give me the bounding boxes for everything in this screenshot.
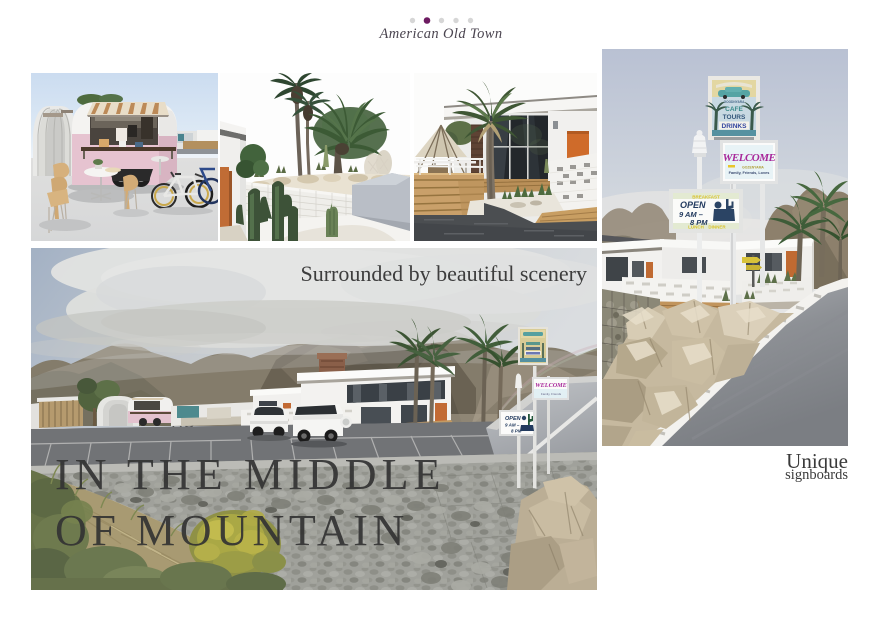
svg-text:GOZENYAMA: GOZENYAMA xyxy=(742,166,764,170)
svg-text:BREAKFAST: BREAKFAST xyxy=(692,195,720,200)
svg-text:9 AM –: 9 AM – xyxy=(505,423,520,428)
svg-text:Family, Friends, Loves: Family, Friends, Loves xyxy=(729,171,770,175)
svg-text:Family, Friends: Family, Friends xyxy=(541,392,562,396)
svg-text:OPEN: OPEN xyxy=(680,200,706,210)
svg-text:TOURS: TOURS xyxy=(723,114,746,121)
svg-text:DRINKS: DRINKS xyxy=(722,123,748,130)
svg-text:WELCOME: WELCOME xyxy=(535,382,567,389)
svg-text:DINNER: DINNER xyxy=(708,225,726,230)
svg-text:WELCOME: WELCOME xyxy=(723,152,776,164)
svg-text:LUNCH: LUNCH xyxy=(688,225,704,230)
svg-text:CAFE: CAFE xyxy=(725,106,743,113)
svg-text:GOODNYARA: GOODNYARA xyxy=(724,100,745,104)
svg-text:OPEN: OPEN xyxy=(505,416,522,422)
